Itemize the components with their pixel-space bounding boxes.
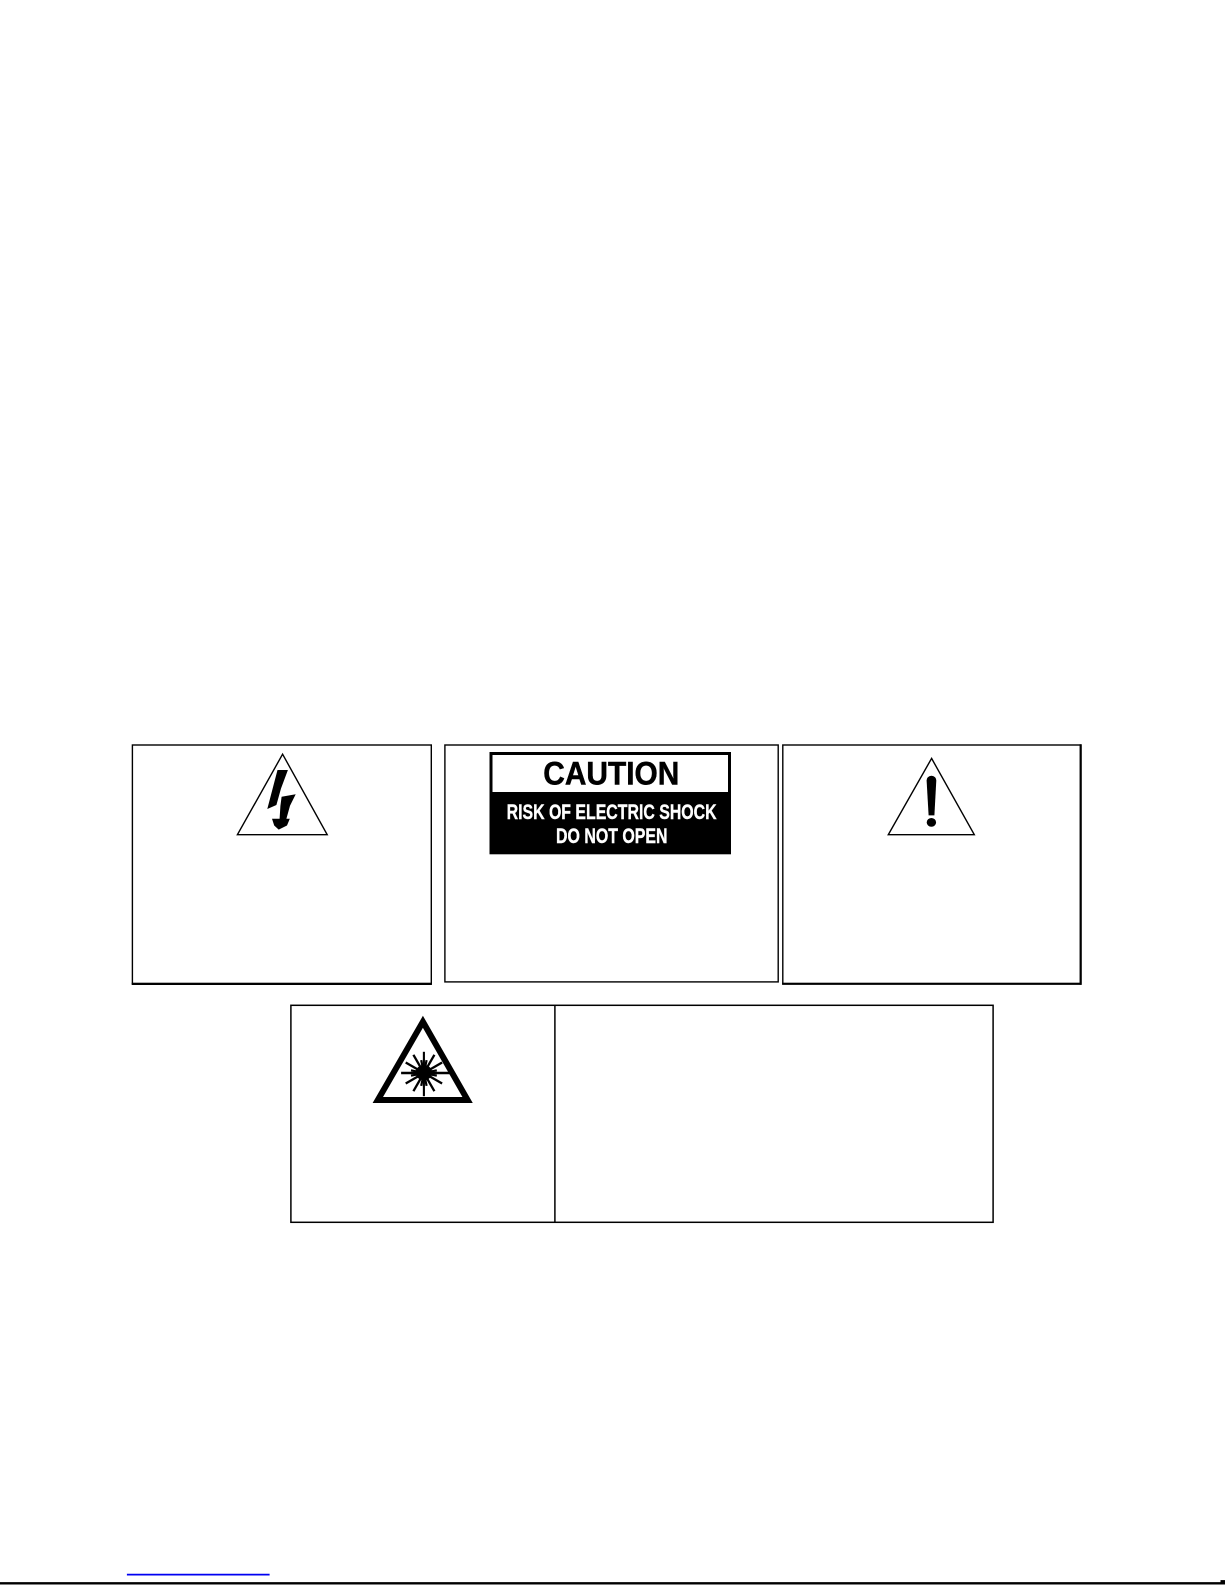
svg-text:RISK OF ELECTRIC SHOCK: RISK OF ELECTRIC SHOCK bbox=[507, 799, 717, 824]
svg-text:CAUTION: CAUTION bbox=[543, 756, 679, 792]
svg-text:DO NOT OPEN: DO NOT OPEN bbox=[556, 823, 668, 848]
